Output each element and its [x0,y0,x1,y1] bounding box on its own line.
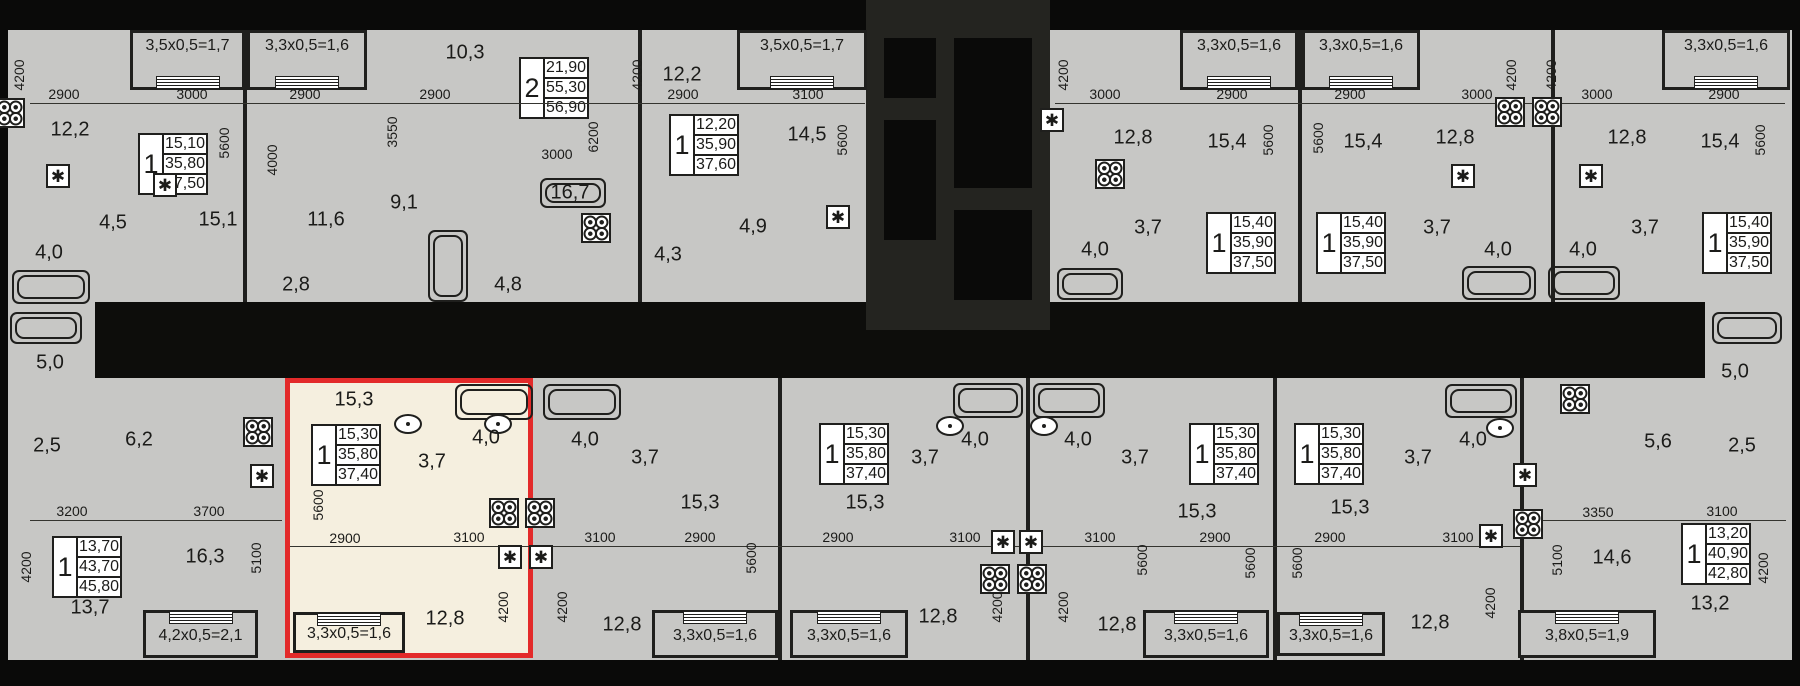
dimension-label: 4200 [554,591,570,622]
floor-plan: 3,5х0,5=1,7 3,3х0,5=1,6 3,5х0,5=1,7 3,3х… [0,0,1800,686]
room-area-label: 6,2 [125,429,153,452]
window-icon [1299,613,1363,626]
apartment-info: 1 12,2035,9037,60 [669,114,739,176]
room-area-label: 12,2 [51,119,90,142]
dimension-label: 3100 [949,529,980,545]
total-area: 37,40 [1320,465,1362,483]
total-area: 56,90 [545,99,587,117]
bathtub-icon [1462,266,1536,300]
balcony-label: 3,3х0,5=1,6 [1289,627,1373,645]
elevator-shaft-icon [954,38,1032,188]
bathtub-icon [1548,266,1620,300]
appliance-icon: ✱ [991,530,1015,554]
appliance-icon: ✱ [1479,524,1503,548]
room-area-label: 4,0 [1064,429,1092,452]
dimension-label: 4200 [11,59,27,90]
room-area-label: 15,3 [1331,497,1370,520]
room-area-label: 4,0 [1459,429,1487,452]
room-area-label: 15,4 [1344,131,1383,154]
total-area: 42,80 [1707,565,1749,583]
dimension-label: 4200 [1503,59,1519,90]
room-area-label: 4,0 [1569,239,1597,262]
dimension-label: 4200 [1055,59,1071,90]
living-area: 15,40 [1232,214,1274,234]
balcony: 4,2х0,5=2,1 [143,610,258,658]
dimension-label: 5600 [834,124,850,155]
balcony-label: 4,2х0,5=2,1 [158,627,242,645]
apartment-area: 35,80 [337,446,379,466]
wall [778,378,782,660]
living-area: 13,70 [78,538,120,558]
balcony: 3,3х0,5=1,6 [1277,612,1385,656]
dimension-label: 4200 [1055,591,1071,622]
dimension-label: 4200 [1543,59,1559,90]
room-area-label: 12,8 [1436,127,1475,150]
apartment-info: 1 15,4035,9037,50 [1206,212,1276,274]
stairwell-icon [954,210,1032,300]
room-area-label: 4,9 [739,216,767,239]
apartment-area: 35,90 [1728,234,1770,254]
bathtub-icon [1057,268,1123,300]
appliance-icon: ✱ [1451,164,1475,188]
room-area-label: 13,7 [71,597,110,620]
apartment-area: 35,90 [695,136,737,156]
appliance-icon: ✱ [529,545,553,569]
room-area-label: 2,5 [33,435,61,458]
room-count: 1 [1683,525,1707,583]
room-count: 1 [821,425,845,483]
room-area-label: 12,8 [1098,614,1137,637]
room-area-label: 4,0 [472,427,500,450]
stove-icon [243,417,273,447]
room-area-label: 5,0 [36,352,64,375]
balcony: 3,3х0,5=1,6 [652,610,778,658]
dimension-label: 5600 [1134,544,1150,575]
balcony: 3,5х0,5=1,7 [130,30,245,90]
total-area: 37,50 [1342,254,1384,272]
stove-icon [1095,159,1125,189]
dimension-line [30,520,282,521]
room-count: 1 [671,116,695,174]
sink-icon [936,416,964,436]
balcony: 3,3х0,5=1,6 [1180,30,1298,90]
room-area-label: 15,3 [335,389,374,412]
stove-icon [1017,564,1047,594]
room-area-label: 3,7 [911,447,939,470]
stair-elevator-core [866,0,1050,330]
dimension-label: 2900 [822,529,853,545]
dimension-label: 5100 [1549,544,1565,575]
dimension-line [290,546,1520,547]
elevator-shaft-icon [884,38,936,98]
dimension-label: 5600 [1289,547,1305,578]
dimension-label: 5100 [248,542,264,573]
room-area-label: 12,8 [1114,127,1153,150]
stove-icon [489,498,519,528]
room-area-label: 2,5 [1728,435,1756,458]
window-icon [1174,611,1238,624]
stove-icon [525,498,555,528]
dimension-label: 3550 [384,116,400,147]
balcony-label: 3,3х0,5=1,6 [673,627,757,645]
appliance-icon: ✱ [498,545,522,569]
stove-icon [581,213,611,243]
room-area-label: 2,8 [282,274,310,297]
room-count: 1 [54,538,78,596]
dimension-label: 3000 [1581,86,1612,102]
dimension-label: 6200 [585,121,601,152]
room-area-label: 15,3 [1178,501,1217,524]
window-icon [683,611,747,624]
window-icon [1555,611,1619,624]
stove-icon [0,98,25,128]
dimension-label: 4200 [629,59,645,90]
bathtub-icon [428,230,468,302]
dimension-label: 2900 [419,86,450,102]
room-area-label: 4,8 [494,274,522,297]
room-area-label: 16,7 [551,182,590,205]
apartment-info: 1 15,4035,9037,50 [1316,212,1386,274]
appliance-icon: ✱ [1040,108,1064,132]
room-area-label: 12,2 [663,64,702,87]
room-area-label: 4,0 [1484,239,1512,262]
apartment-area: 40,90 [1707,545,1749,565]
apartment-area: 55,30 [545,79,587,99]
dimension-label: 4200 [989,591,1005,622]
room-count: 1 [1318,214,1342,272]
apartment-area: 35,80 [845,445,887,465]
room-area-label: 15,3 [681,492,720,515]
dimension-label: 3000 [1461,86,1492,102]
apartment-area: 35,80 [164,155,206,175]
room-area-label: 5,0 [1721,361,1749,384]
balcony: 3,5х0,5=1,7 [737,30,867,90]
room-area-label: 9,1 [390,192,418,215]
room-count: 2 [521,59,545,117]
bathtub-icon [953,383,1023,418]
total-area: 37,50 [1728,254,1770,272]
room-area-label: 4,0 [571,429,599,452]
living-area: 21,90 [545,59,587,79]
balcony: 3,3х0,5=1,6 [790,610,908,658]
dimension-label: 4000 [264,144,280,175]
living-area: 15,30 [845,425,887,445]
room-area-label: 4,0 [35,242,63,265]
balcony-label: 3,3х0,5=1,6 [807,627,891,645]
stove-icon [1560,384,1590,414]
total-area: 45,80 [78,578,120,596]
dimension-label: 3100 [584,529,615,545]
room-area-label: 3,7 [1121,447,1149,470]
dimension-label: 2900 [1334,86,1365,102]
appliance-icon: ✱ [250,464,274,488]
balcony: 3,3х0,5=1,6 [1143,610,1269,658]
apartment-info: 2 21,9055,3056,90 [519,57,589,119]
dimension-label: 2900 [1708,86,1739,102]
room-area-label: 11,6 [307,209,344,232]
dimension-label: 3100 [1442,529,1473,545]
room-area-label: 15,4 [1701,131,1740,154]
balcony: 3,3х0,5=1,6 [293,612,405,653]
bathtub-icon [1445,384,1517,418]
room-area-label: 12,8 [1608,127,1647,150]
room-count: 1 [1704,214,1728,272]
room-area-label: 3,7 [631,447,659,470]
dimension-label: 2900 [289,86,320,102]
room-area-label: 12,8 [603,614,642,637]
appliance-icon: ✱ [826,205,850,229]
room-area-label: 3,7 [1134,217,1162,240]
dimension-line [1055,103,1785,104]
dimension-label: 4200 [1755,552,1771,583]
dimension-label: 2900 [667,86,698,102]
balcony-label: 3,3х0,5=1,6 [1684,37,1768,55]
sink-icon [394,414,422,434]
room-area-label: 13,2 [1691,593,1730,616]
stove-icon [1532,97,1562,127]
room-area-label: 14,6 [1593,547,1632,570]
room-count: 1 [1296,425,1320,483]
room-area-label: 4,0 [961,429,989,452]
apartment-area: 43,70 [78,558,120,578]
room-area-label: 3,7 [1423,217,1451,240]
appliance-icon: ✱ [1579,164,1603,188]
room-area-label: 3,7 [418,451,446,474]
living-area: 15,10 [164,135,206,155]
dimension-label: 3200 [56,503,87,519]
apartment-info: 1 13,2040,9042,80 [1681,523,1751,585]
bathtub-icon [10,312,82,344]
room-area-label: 5,6 [1644,431,1672,454]
window-icon [317,613,381,626]
room-area-label: 4,3 [654,244,682,267]
balcony-label: 3,3х0,5=1,6 [307,625,391,643]
room-area-label: 4,5 [99,212,127,235]
balcony-label: 3,5х0,5=1,7 [760,37,844,55]
dimension-label: 2900 [1314,529,1345,545]
room-area-label: 15,4 [1208,131,1247,154]
appliance-icon: ✱ [46,164,70,188]
appliance-icon: ✱ [1513,463,1537,487]
dimension-label: 2900 [684,529,715,545]
living-area: 15,40 [1342,214,1384,234]
room-count: 1 [1208,214,1232,272]
dimension-label: 5600 [216,127,232,158]
dimension-label: 5600 [1242,547,1258,578]
stove-icon [1495,97,1525,127]
bathtub-icon [1712,312,1782,344]
bathtub-icon [1033,383,1105,418]
dimension-label: 2900 [1216,86,1247,102]
dimension-label: 3350 [1582,504,1613,520]
balcony: 3,3х0,5=1,6 [1302,30,1420,90]
window-icon [169,611,233,624]
bathtub-icon [12,270,90,304]
bathtub-icon [543,384,621,420]
living-area: 15,40 [1728,214,1770,234]
dimension-label: 5600 [743,542,759,573]
dimension-label: 5600 [1752,124,1768,155]
apartment-area: 35,80 [1215,445,1257,465]
room-area-label: 12,8 [919,606,958,629]
dimension-label: 3700 [193,503,224,519]
room-area-label: 12,8 [1411,612,1450,635]
room-area-label: 3,7 [1631,217,1659,240]
dimension-line [30,103,865,104]
sink-icon [1030,416,1058,436]
room-count: 1 [1191,425,1215,483]
apartment-info-selected: 1 15,3035,8037,40 [311,424,381,486]
dimension-label: 4200 [495,591,511,622]
room-area-label: 10,3 [446,42,485,65]
total-area: 37,40 [1215,465,1257,483]
balcony-label: 3,5х0,5=1,7 [145,37,229,55]
balcony-label: 3,3х0,5=1,6 [1319,37,1403,55]
apartment-area: 35,80 [1320,445,1362,465]
balcony: 3,8х0,5=1,9 [1518,610,1656,658]
dimension-line [1528,520,1786,521]
balcony-label: 3,3х0,5=1,6 [1197,37,1281,55]
room-area-label: 15,3 [846,492,885,515]
room-area-label: 12,8 [426,608,465,631]
total-area: 37,40 [845,465,887,483]
stairwell-icon [884,120,936,240]
dimension-label: 3100 [1706,503,1737,519]
living-area: 12,20 [695,116,737,136]
apartment-info: 1 15,3035,8037,40 [819,423,889,485]
dimension-label: 2900 [48,86,79,102]
apartment-info: 1 15,4035,9037,50 [1702,212,1772,274]
room-area-label: 16,3 [186,546,225,569]
room-count: 1 [313,426,337,484]
total-area: 37,60 [695,156,737,174]
living-area: 15,30 [1215,425,1257,445]
living-area: 15,30 [1320,425,1362,445]
apartment-area: 35,90 [1232,234,1274,254]
dimension-label: 3100 [453,529,484,545]
room-area-label: 15,1 [199,209,238,232]
dimension-label: 2900 [1199,529,1230,545]
apartment-info: 1 15,3035,8037,40 [1294,423,1364,485]
balcony: 3,3х0,5=1,6 [247,30,367,90]
living-area: 13,20 [1707,525,1749,545]
wall [1026,378,1030,660]
sink-icon [1486,418,1514,438]
dimension-label: 3000 [541,146,572,162]
balcony-label: 3,3х0,5=1,6 [1164,627,1248,645]
dimension-label: 5600 [310,489,326,520]
apartment-info: 1 13,7043,7045,80 [52,536,122,598]
dimension-label: 5600 [1260,124,1276,155]
window-icon [817,611,881,624]
dimension-label: 3100 [1084,529,1115,545]
dimension-label: 5600 [1310,122,1326,153]
room-area-label: 4,0 [1081,239,1109,262]
balcony-label: 3,8х0,5=1,9 [1545,627,1629,645]
stove-icon [980,564,1010,594]
appliance-icon: ✱ [153,173,177,197]
room-area-label: 3,7 [1404,447,1432,470]
total-area: 37,50 [1232,254,1274,272]
living-area: 15,30 [337,426,379,446]
dimension-label: 2900 [329,530,360,546]
room-area-label: 14,5 [788,124,827,147]
apartment-area: 35,90 [1342,234,1384,254]
balcony-label: 3,3х0,5=1,6 [265,37,349,55]
balcony: 3,3х0,5=1,6 [1662,30,1790,90]
dimension-label: 4200 [18,551,34,582]
stove-icon [1513,509,1543,539]
apartment-info: 1 15,3035,8037,40 [1189,423,1259,485]
appliance-icon: ✱ [1019,530,1043,554]
dimension-label: 4200 [1482,587,1498,618]
dimension-label: 3100 [792,86,823,102]
dimension-label: 3000 [1089,86,1120,102]
total-area: 37,40 [337,466,379,484]
dimension-label: 3000 [176,86,207,102]
